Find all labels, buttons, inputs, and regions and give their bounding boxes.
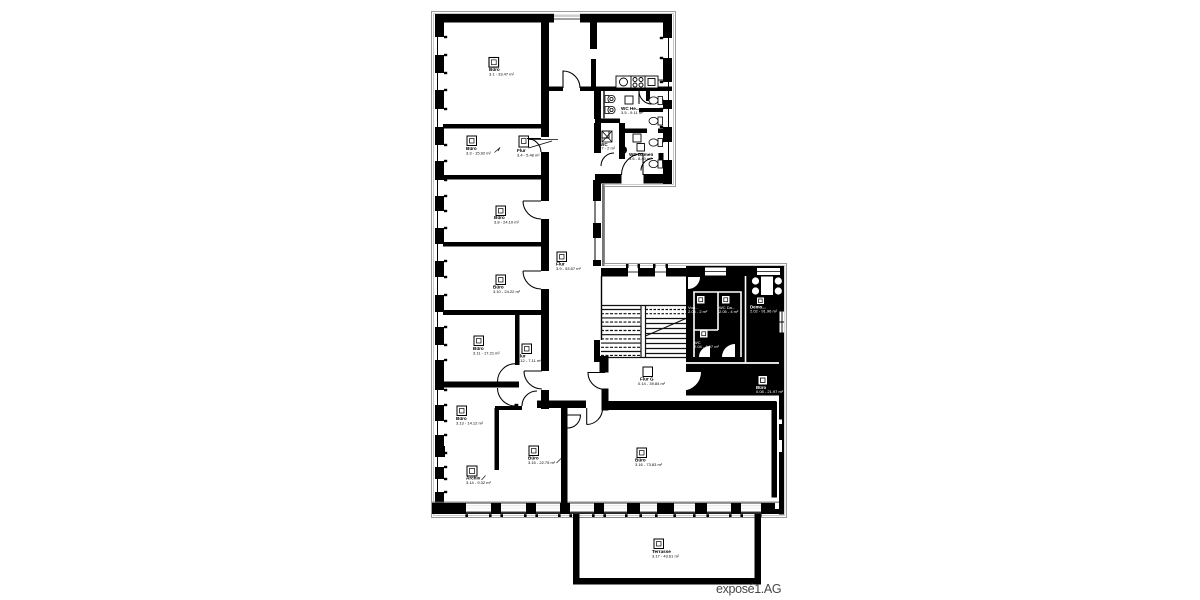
svg-text:3.17 - 43.61 m²: 3.17 - 43.61 m² xyxy=(652,554,680,559)
svg-text:3.10 - 24.22 m²: 3.10 - 24.22 m² xyxy=(493,289,521,294)
svg-text:3.6 - 8.40 m²: 3.6 - 8.40 m² xyxy=(629,156,652,161)
svg-text:3.12 - 7.11 m²: 3.12 - 7.11 m² xyxy=(517,358,542,363)
svg-text:3.15 - 22.75 m²: 3.15 - 22.75 m² xyxy=(528,460,556,465)
svg-text:2.05 - 4 m²: 2.05 - 4 m² xyxy=(719,309,739,314)
svg-text:3.14 - 9.32 m²: 3.14 - 9.32 m² xyxy=(466,480,492,485)
svg-text:3.13 - 14.12 m²: 3.13 - 14.12 m² xyxy=(456,421,484,426)
svg-text:3.1 - 33.47 m²: 3.1 - 33.47 m² xyxy=(489,72,515,77)
svg-text:0.14 - 39.84 m²: 0.14 - 39.84 m² xyxy=(638,381,666,386)
svg-text:2.04 - 4.07 m²: 2.04 - 4.07 m² xyxy=(694,344,720,349)
svg-text:3.9 - 53.57 m²: 3.9 - 53.57 m² xyxy=(556,266,582,271)
svg-text:2.02 - 91.96 m²: 2.02 - 91.96 m² xyxy=(750,308,778,313)
svg-text:3.4 - 5.48 m²: 3.4 - 5.48 m² xyxy=(517,153,540,158)
svg-text:2.06 - 2 m²: 2.06 - 2 m² xyxy=(688,309,708,314)
svg-text:exposé1.AG: exposé1.AG xyxy=(716,582,781,596)
svg-text:3.8 - 24.10 m²: 3.8 - 24.10 m² xyxy=(494,220,520,225)
svg-text:0.08 - 21.97 m²: 0.08 - 21.97 m² xyxy=(756,389,784,394)
svg-text:3.5 - 9.11 m²: 3.5 - 9.11 m² xyxy=(621,110,644,115)
svg-text:3.16 - 73.83 m²: 3.16 - 73.83 m² xyxy=(635,462,663,467)
svg-text:3.11 - 17.21 m²: 3.11 - 17.21 m² xyxy=(473,351,500,356)
svg-text:3.7 - 2 m²: 3.7 - 2 m² xyxy=(598,146,616,151)
svg-text:3.3 - 15.92 m²: 3.3 - 15.92 m² xyxy=(466,151,492,156)
